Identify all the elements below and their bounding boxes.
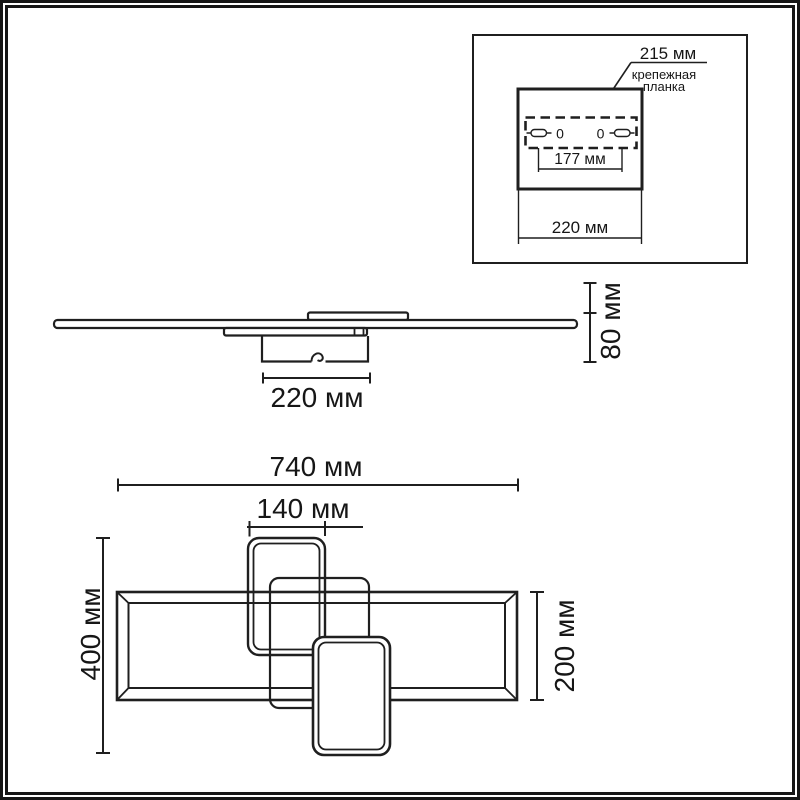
top-dim-140-label: 140 мм — [257, 493, 350, 524]
top-dim-140: 140 мм — [247, 493, 363, 537]
top-dim-400-label: 400 мм — [75, 588, 106, 681]
side-dim-220: 220 мм — [263, 373, 370, 414]
side-dim-80-label: 80 мм — [595, 282, 626, 359]
side-main-bar — [54, 320, 577, 328]
side-lower-bar — [224, 328, 367, 336]
inset-dim-220-label: 220 мм — [552, 218, 608, 237]
bottom-lamp-rect-inner — [319, 643, 385, 750]
inset-dim-215-label: 215 мм — [640, 44, 696, 63]
top-lamp-rect-inner — [254, 544, 320, 650]
side-dim-220-label: 220 мм — [271, 382, 364, 413]
top-lamp-rect — [248, 538, 325, 655]
side-dim-80: 80 мм — [584, 282, 627, 362]
top-dim-740: 740 мм — [118, 451, 518, 492]
canopy-right-bottom — [326, 336, 369, 362]
side-canopy-box — [262, 336, 368, 362]
bottom-lamp-rect — [313, 637, 390, 755]
canopy-hook-curl — [312, 353, 323, 361]
top-dim-200-label: 200 мм — [549, 600, 580, 693]
side-view: 220 мм 80 мм — [54, 282, 626, 413]
frame-miter-tr — [505, 592, 517, 603]
top-dim-740-label: 740 мм — [270, 451, 363, 482]
slot-right-hole — [615, 130, 631, 137]
slot-left-hole — [531, 130, 547, 137]
frame-miter-tl — [117, 592, 129, 603]
hole-zero-right: 0 — [597, 126, 605, 142]
mounting-box — [518, 89, 642, 189]
top-view: 740 мм 140 мм — [75, 451, 580, 755]
hole-zero-left: 0 — [556, 126, 564, 142]
frame-miter-bl — [117, 688, 129, 700]
diagram-svg: 215 мм крепежная планка 0 0 — [0, 0, 800, 800]
lamp-dimension-diagram: 215 мм крепежная планка 0 0 — [0, 0, 800, 800]
mount-plate-label-line2: планка — [643, 79, 686, 94]
inset-dim-177-label: 177 мм — [554, 151, 605, 168]
top-lamp-rect-outer — [248, 538, 325, 655]
canopy-left-bottom — [262, 336, 312, 362]
mounting-inset: 215 мм крепежная планка 0 0 — [473, 35, 747, 263]
top-dim-400: 400 мм — [75, 538, 110, 753]
frame-miter-br — [505, 688, 517, 700]
top-dim-200: 200 мм — [530, 592, 580, 700]
side-top-bar — [308, 313, 408, 321]
